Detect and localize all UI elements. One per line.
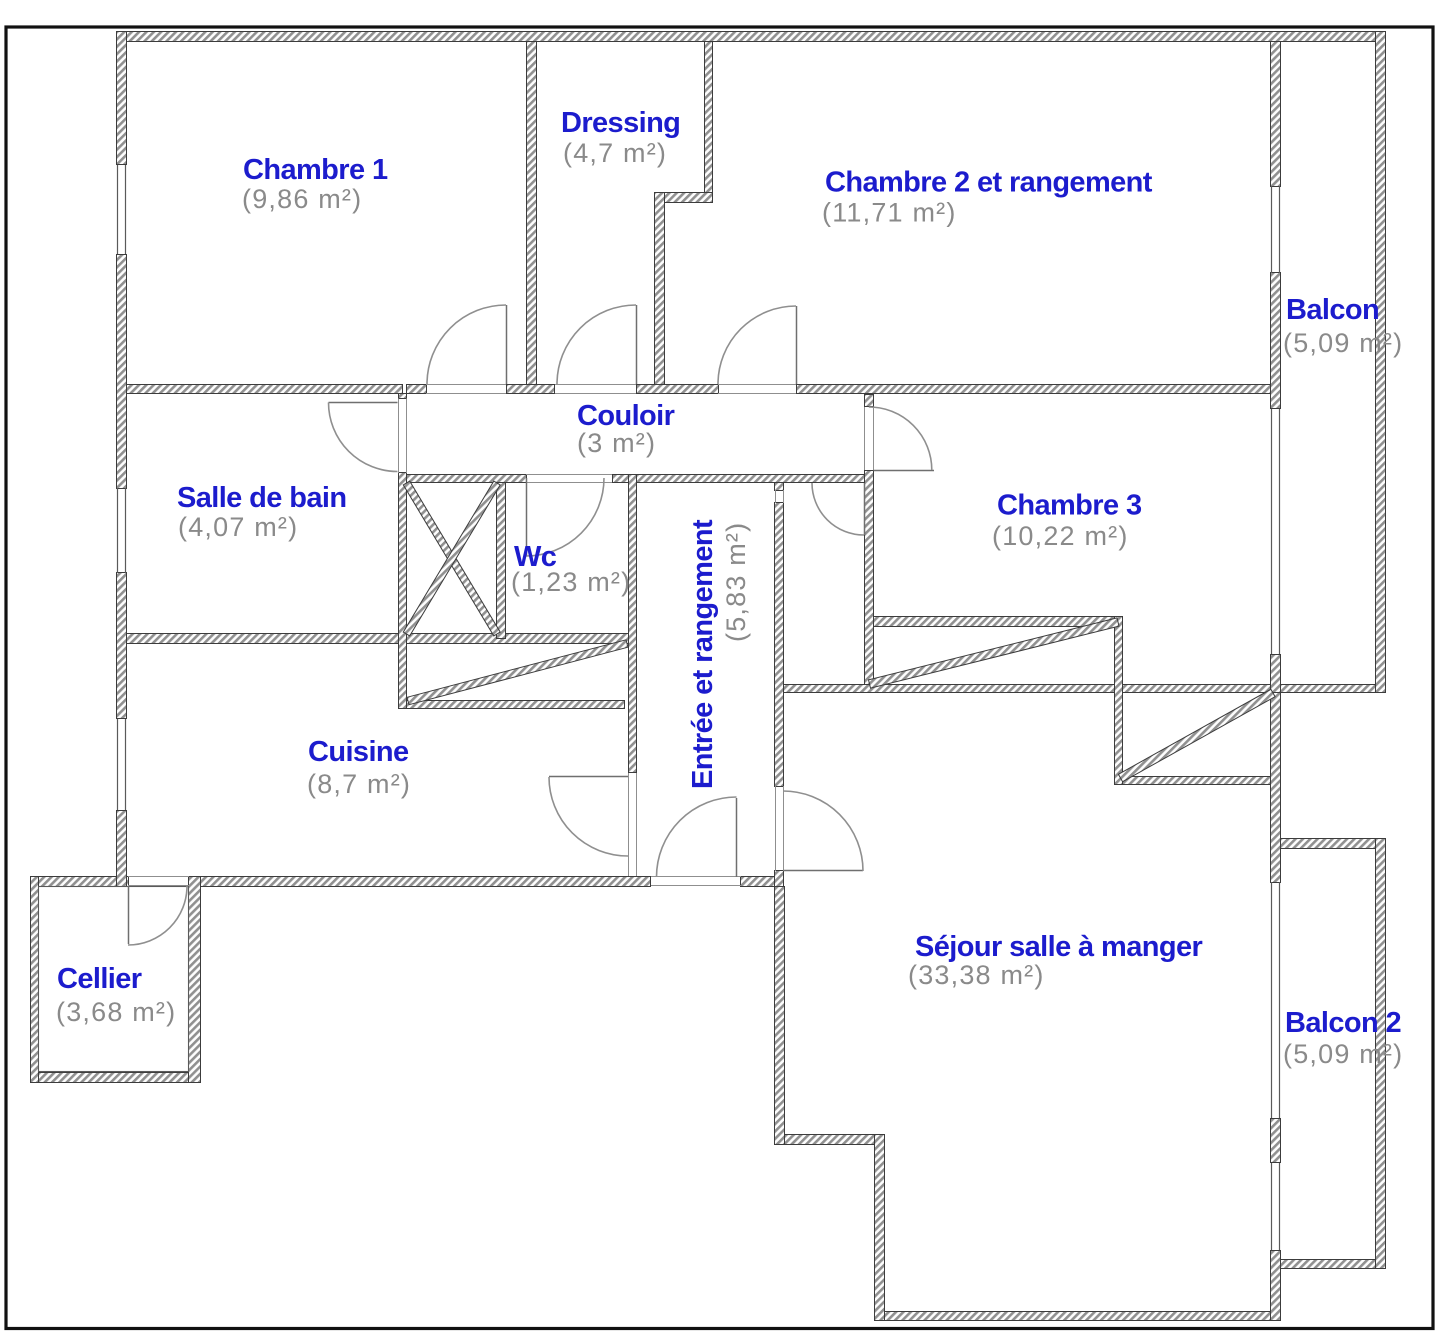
svg-text:(3 m²): (3 m²) [577,428,656,458]
svg-text:Balcon: Balcon [1286,294,1379,326]
svg-text:Séjour salle à manger: Séjour salle à manger [915,931,1203,963]
svg-text:Chambre 1: Chambre 1 [243,154,388,186]
svg-text:(11,71 m²): (11,71 m²) [822,198,957,228]
svg-text:(4,07 m²): (4,07 m²) [178,512,298,542]
svg-text:(9,86 m²): (9,86 m²) [242,184,362,214]
svg-text:Entrée et rangement: Entrée et rangement [687,519,719,789]
svg-text:(1,23 m²): (1,23 m²) [511,567,631,597]
svg-text:(3,68 m²): (3,68 m²) [56,997,176,1027]
svg-text:Salle de bain: Salle de bain [177,482,347,514]
svg-text:(4,7 m²): (4,7 m²) [563,138,667,168]
svg-text:(5,83 m²): (5,83 m²) [721,522,751,642]
svg-text:(8,7 m²): (8,7 m²) [307,769,411,799]
svg-text:Balcon 2: Balcon 2 [1285,1007,1401,1039]
svg-text:Cellier: Cellier [57,963,142,995]
svg-text:Chambre 2 et rangement: Chambre 2 et rangement [825,167,1153,199]
svg-text:Dressing: Dressing [561,107,680,139]
svg-text:Cuisine: Cuisine [308,736,409,768]
svg-text:(5,09 m²): (5,09 m²) [1283,1039,1403,1069]
svg-text:(10,22 m²): (10,22 m²) [992,521,1129,551]
svg-text:(5,09 m²): (5,09 m²) [1283,328,1403,358]
svg-text:(33,38 m²): (33,38 m²) [908,960,1045,990]
svg-text:Chambre 3: Chambre 3 [997,490,1142,522]
